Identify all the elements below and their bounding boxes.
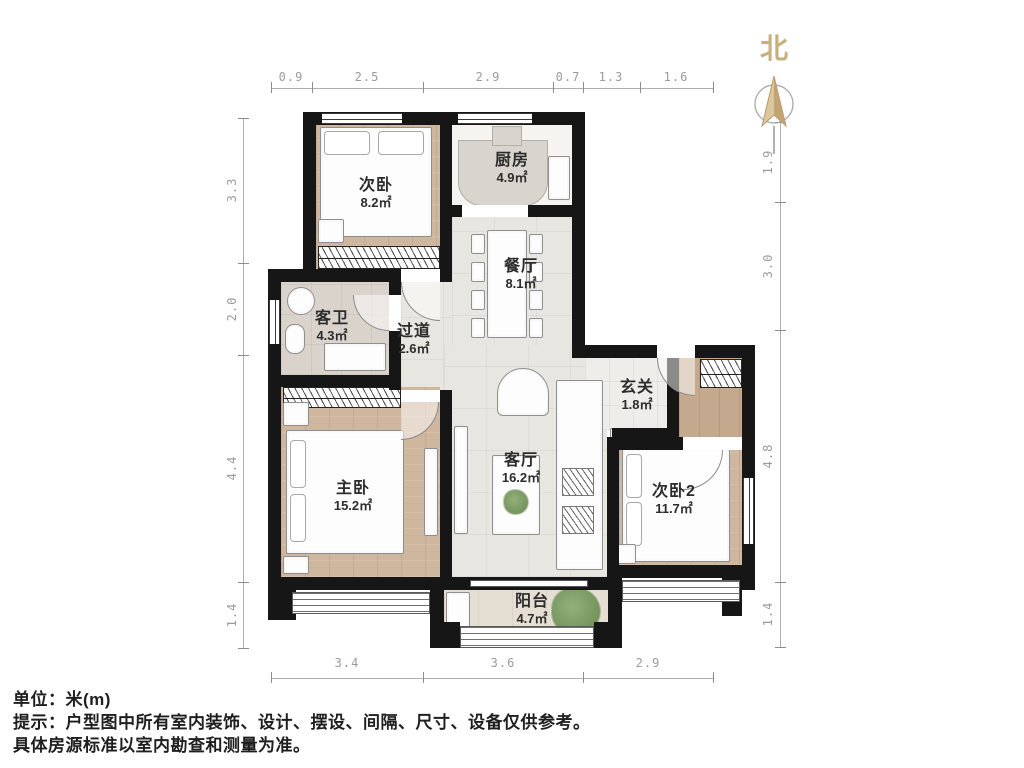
dim-tick (775, 202, 786, 203)
tv-cabinet (454, 426, 468, 534)
room-label-bedroom2: 次卧 8.2㎡ (331, 176, 421, 211)
wall-segment (608, 565, 755, 578)
shoe-cabinet-entry (700, 359, 742, 388)
room-label-living: 客厅 16.2㎡ (476, 451, 566, 486)
dim-tick (238, 648, 249, 649)
dim-label: 4.4 (225, 448, 239, 488)
north-label: 北 (742, 34, 806, 64)
wall-segment (607, 440, 619, 577)
window-bathroom (269, 300, 280, 344)
footer-notes: 单位：米(m) 提示：户型图中所有室内装饰、设计、摆设、间隔、尺寸、设备仅供参考… (13, 688, 591, 757)
dim-line-right (780, 122, 781, 647)
window-kitchen (458, 113, 532, 124)
door-opening-entry (657, 345, 695, 358)
room-label-hallway: 过道 2.6㎡ (369, 322, 459, 357)
dim-tick (238, 263, 249, 264)
dim-label: 3.6 (483, 656, 523, 670)
wall-segment (430, 622, 460, 648)
dim-label: 1.4 (761, 594, 775, 634)
dim-label: 3.4 (327, 656, 367, 670)
dim-line-bottom (271, 678, 713, 679)
dim-label: 1.3 (591, 70, 631, 84)
dim-tick (271, 672, 272, 683)
room-label-bedroom3: 次卧2 11.7㎡ (629, 482, 719, 517)
door-opening-kitchen (462, 205, 528, 217)
room-label-entry: 玄关 1.8㎡ (592, 378, 682, 413)
chair (529, 290, 543, 310)
wall-segment (572, 112, 585, 358)
dim-tick (583, 672, 584, 683)
armchair (497, 368, 549, 416)
nightstand (283, 402, 309, 426)
chair (471, 234, 485, 254)
dim-tick (713, 672, 714, 683)
sliding-door-balcony (470, 580, 588, 587)
dim-label: 1.6 (656, 70, 696, 84)
room-label-balcony: 阳台 4.7㎡ (487, 592, 577, 627)
door-opening-master (401, 390, 440, 402)
floor-plan: 次卧 8.2㎡ 厨房 4.9㎡ 餐厅 8.1㎡ 客卫 4.3㎡ 过道 2.6㎡ … (0, 0, 1024, 768)
wall-segment (303, 112, 316, 282)
room-label-master: 主卧 15.2㎡ (308, 479, 398, 514)
window-bedroom2 (322, 113, 402, 124)
wall-segment (742, 345, 755, 590)
door-opening-bedroom3 (683, 437, 742, 450)
dim-tick (775, 647, 786, 648)
chair (529, 234, 543, 254)
wall-segment (572, 345, 657, 358)
north-arrow-icon (742, 64, 806, 156)
nightstand (318, 219, 344, 243)
dim-label: 1.4 (225, 595, 239, 635)
pillow (290, 494, 306, 542)
room-label-dining: 餐厅 8.1㎡ (476, 257, 566, 292)
sofa-cushion (562, 506, 594, 534)
dim-line-top (271, 88, 713, 89)
dim-label: 3.3 (225, 170, 239, 210)
wardrobe-bedroom2 (318, 246, 440, 269)
dim-tick (312, 82, 313, 93)
wall-segment (608, 577, 622, 625)
kitchen-appliance (492, 126, 522, 146)
balcony-railing (460, 626, 594, 648)
pillow (324, 131, 370, 155)
nightstand (283, 556, 309, 574)
door-opening-bedroom2 (401, 269, 440, 282)
window-bedroom3-east (743, 478, 754, 544)
wall-segment (594, 622, 622, 648)
dim-tick (775, 582, 786, 583)
dim-tick (423, 82, 424, 93)
wall-segment (440, 125, 452, 282)
north-indicator: 北 (742, 34, 806, 158)
dim-label: 2.9 (468, 70, 508, 84)
wall-segment (316, 269, 401, 282)
chair (471, 290, 485, 310)
dim-tick (238, 355, 249, 356)
dim-label: 2.5 (347, 70, 387, 84)
dim-label: 3.0 (761, 246, 775, 286)
wall-segment (528, 205, 585, 217)
dim-tick (775, 330, 786, 331)
pillow (290, 440, 306, 488)
footer-note: 具体房源标准以室内勘查和测量为准。 (13, 734, 591, 757)
plant-coffee-table (504, 490, 528, 514)
dim-tick (238, 118, 249, 119)
dim-line-left (243, 118, 244, 648)
dim-tick (238, 582, 249, 583)
dim-tick (713, 82, 714, 93)
bay-window-master (292, 592, 430, 614)
bay-window-bedroom3 (622, 580, 740, 602)
pillow (378, 131, 424, 155)
dim-label: 4.8 (761, 436, 775, 476)
wall-segment (281, 375, 401, 387)
chair (529, 318, 543, 338)
room-label-kitchen: 厨房 4.9㎡ (467, 151, 557, 186)
wall-segment (440, 390, 452, 577)
footer-unit: 单位：米(m) (13, 688, 591, 711)
dim-label: 0.7 (548, 70, 588, 84)
dresser-master (424, 448, 438, 536)
sofa-cushion (562, 468, 594, 496)
dim-tick (640, 82, 641, 93)
dim-label: 0.9 (271, 70, 311, 84)
dim-label: 2.9 (628, 656, 668, 670)
footer-tip: 提示：户型图中所有室内装饰、设计、摆设、间隔、尺寸、设备仅供参考。 (13, 711, 591, 734)
room-label-bathroom: 客卫 4.3㎡ (287, 309, 377, 344)
dim-label: 2.0 (225, 289, 239, 329)
dim-tick (423, 672, 424, 683)
chair (471, 318, 485, 338)
